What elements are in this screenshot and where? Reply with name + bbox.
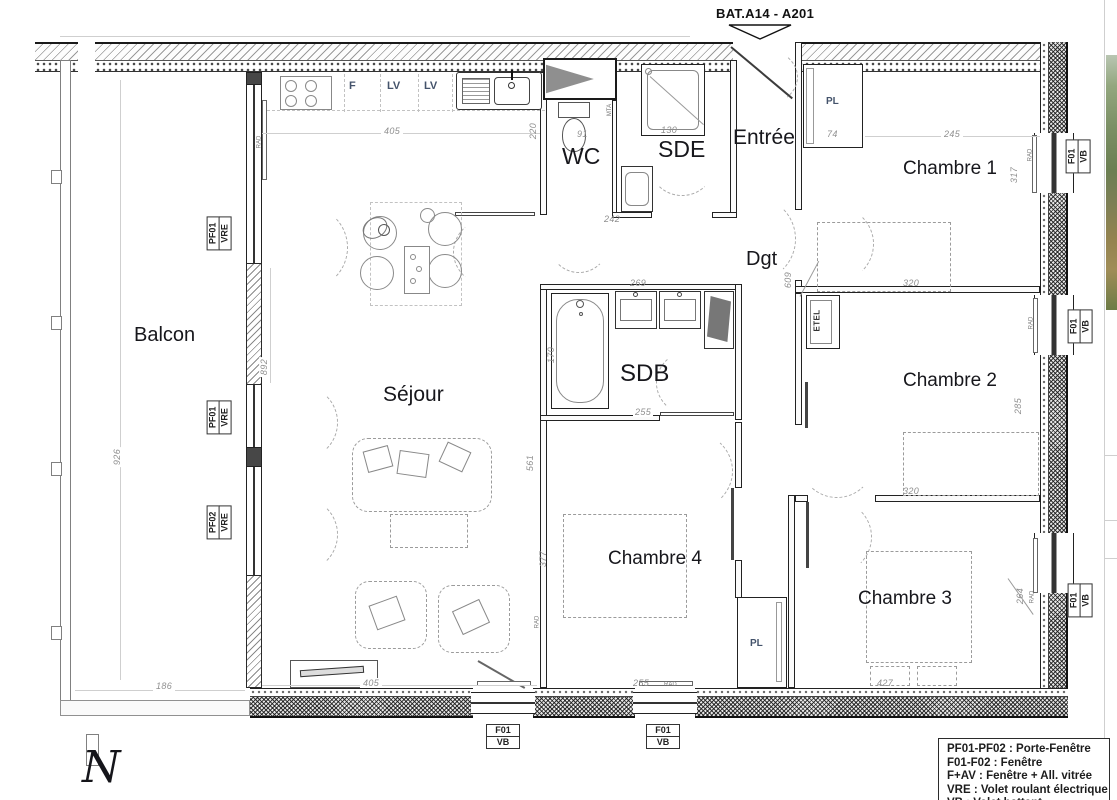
- exterior-wall-right: [1040, 593, 1068, 700]
- window-tag-pf01: PF01VRE: [207, 216, 232, 250]
- sdb-sink-inner: [664, 299, 696, 321]
- interior-wall: [875, 495, 1040, 502]
- dimension: 220: [528, 123, 538, 139]
- table-decor: [416, 266, 422, 272]
- table-line: [1104, 520, 1117, 521]
- radiator: [1032, 135, 1037, 193]
- plant-icon: [420, 208, 435, 223]
- door-arc: [800, 426, 874, 498]
- window-tag-f01: F01VB: [1068, 583, 1093, 617]
- dimension: 264: [1015, 588, 1025, 604]
- dimension: 130: [661, 125, 677, 135]
- closet-label: PL: [826, 96, 839, 107]
- door-arc: [798, 500, 872, 574]
- dimension: 320: [903, 486, 919, 496]
- entrance-arrow-icon: [728, 24, 792, 41]
- interior-wall: [735, 284, 742, 420]
- window-sejour-south: [471, 692, 535, 714]
- burner-icon: [285, 95, 297, 107]
- bath-drain-icon: [579, 312, 583, 316]
- tag-shutter: VB: [1079, 309, 1092, 343]
- porte-fenetre-pf01-mid: [246, 385, 262, 447]
- balcony-tab: [51, 626, 62, 640]
- sde-washbasin-inner: [625, 172, 649, 206]
- door-arc: [549, 213, 609, 273]
- faucet-stem: [511, 70, 513, 80]
- counter-edge: [262, 110, 545, 111]
- radiator: [1033, 538, 1038, 593]
- counter-divider: [418, 74, 419, 112]
- dimension-line: [120, 80, 121, 680]
- porte-fenetre-pf02: [246, 467, 262, 575]
- dimension: 892: [259, 357, 269, 377]
- dimension: 561: [525, 455, 535, 471]
- legend-line: VRE : Volet roulant électrique: [947, 784, 1101, 798]
- room-label-chambre2: Chambre 2: [903, 370, 997, 392]
- plan-reference: BAT.A14 - A201: [716, 6, 814, 21]
- tag-shutter: VB: [646, 736, 680, 749]
- door-arc: [453, 215, 541, 289]
- table-decor: [410, 278, 416, 284]
- tag-shutter: VB: [486, 736, 520, 749]
- balcony-rail: [60, 60, 71, 716]
- table-decor: [410, 254, 416, 260]
- room-label-entree: Entrée: [733, 126, 795, 150]
- wall-pier: [246, 575, 262, 688]
- table-line: [1104, 558, 1117, 559]
- room-label-chambre4: Chambre 4: [608, 548, 702, 570]
- balcony-tab: [51, 170, 62, 184]
- interior-wall: [735, 422, 742, 488]
- sdb-cabinet-door: [707, 296, 731, 342]
- window-tag-f01: F01VB: [646, 724, 680, 749]
- dimension: 255: [633, 678, 649, 688]
- window-tag-pf02: PF02VRE: [207, 505, 232, 539]
- dimension: 377: [538, 551, 548, 567]
- balcony-tab: [51, 316, 62, 330]
- shower-inner: [647, 70, 699, 130]
- page-divider-line: [1104, 0, 1105, 800]
- dimension: 320: [903, 278, 919, 288]
- tag-shutter: VB: [1077, 139, 1090, 173]
- washer-label: LV: [424, 80, 437, 92]
- burner-icon: [305, 80, 317, 92]
- dimension-line: [262, 685, 537, 686]
- tag-shutter: VRE: [218, 505, 231, 539]
- door-leaf: [805, 382, 808, 428]
- north-arrow-label: N: [82, 742, 121, 793]
- room-label-sejour: Séjour: [383, 383, 444, 407]
- sink-tap-icon: [677, 292, 682, 297]
- tag-shutter: VRE: [218, 400, 231, 434]
- exterior-wall-right: [1040, 42, 1068, 133]
- door-arc: [263, 385, 338, 460]
- rad-label: RAD: [534, 616, 540, 629]
- wall-pier: [246, 72, 262, 85]
- interior-wall: [788, 495, 795, 688]
- exterior-wall-right: [1040, 355, 1068, 533]
- bed-outline-chambre2: [903, 432, 1039, 496]
- bath-faucet-icon: [576, 300, 584, 308]
- shower-head-icon: [645, 68, 652, 75]
- photo-thumbnail: [1106, 55, 1117, 310]
- room-label-chambre3: Chambre 3: [858, 588, 952, 610]
- legend-line: PF01-PF02 : Porte-Fenêtre: [947, 743, 1101, 757]
- legend-box: PF01-PF02 : Porte-Fenêtre F01-F02 : Fenê…: [938, 738, 1110, 800]
- exterior-wall-right: [1040, 193, 1068, 295]
- tag-shutter: VB: [1079, 583, 1092, 617]
- coffee-table-outline: [390, 514, 468, 548]
- window-tag-pf01: PF01VRE: [207, 400, 232, 434]
- balcony-slab-edge: [60, 700, 250, 716]
- dimension: 170: [546, 347, 556, 363]
- dimension: 74: [827, 129, 838, 139]
- closet-door: [776, 602, 782, 682]
- dimension: 405: [360, 678, 382, 688]
- legend-line: F01-F02 : Fenêtre: [947, 757, 1101, 771]
- rad-label: RAD: [256, 136, 262, 149]
- interior-wall: [795, 293, 802, 425]
- sink-drainer: [462, 78, 490, 104]
- balcony-tab: [51, 462, 62, 476]
- bed-outline-chambre1: [817, 222, 951, 292]
- rad-label: RAD: [1028, 317, 1034, 330]
- dimension: 285: [1013, 398, 1023, 414]
- burner-icon: [305, 95, 317, 107]
- rad-label: RAD: [664, 682, 677, 688]
- floor-plan-page: { "annotations": { "bat_ref": "BAT.A14 -…: [0, 0, 1117, 800]
- interior-wall: [795, 495, 808, 502]
- door-arc: [263, 205, 348, 290]
- exterior-wall-bottom: [533, 688, 635, 718]
- door-arc: [263, 497, 338, 572]
- room-label-sde: SDE: [658, 136, 705, 163]
- interior-wall: [540, 285, 547, 688]
- interior-wall: [735, 560, 742, 598]
- dishwasher-label: LV: [387, 80, 400, 92]
- dimension: 186: [153, 681, 175, 691]
- interior-wall: [612, 100, 617, 215]
- window-tag-f01: F01VB: [1066, 139, 1091, 173]
- closet-label: PL: [750, 638, 763, 649]
- dimension-line: [270, 268, 271, 383]
- tag-shutter: VRE: [218, 216, 231, 250]
- rad-label: RAD: [1029, 591, 1035, 604]
- dimension: 609: [783, 272, 793, 288]
- toilet-tank: [558, 102, 590, 118]
- dimension: 427: [877, 678, 893, 688]
- room-label-wc: WC: [562, 143, 600, 170]
- legend-line: F+AV : Fenêtre + All. vitrée: [947, 770, 1101, 784]
- room-label-dgt: Dgt: [746, 248, 777, 271]
- window-chambre4-south: [633, 692, 697, 714]
- bed-stool-outline: [917, 666, 957, 686]
- dimension: 242: [604, 214, 620, 224]
- room-label-sdb: SDB: [620, 360, 669, 388]
- room-label-balcon: Balcon: [134, 324, 195, 347]
- dimension: 405: [381, 126, 403, 136]
- counter-divider: [452, 74, 453, 112]
- porte-fenetre-pf01-north: [246, 85, 262, 263]
- counter-divider: [380, 74, 381, 112]
- rad-label: RAD: [1027, 149, 1033, 162]
- dimension: 255: [633, 407, 653, 417]
- burner-icon: [285, 80, 297, 92]
- door-arc: [643, 430, 733, 512]
- dimension: 317: [1009, 167, 1019, 183]
- room-label-chambre1: Chambre 1: [903, 158, 997, 180]
- exterior-wall-bottom: [250, 688, 473, 718]
- dimension: 91: [577, 129, 588, 139]
- cushion: [396, 450, 429, 478]
- dimension: 269: [630, 278, 646, 288]
- exterior-wall-top: [95, 42, 733, 72]
- window-tag-f01: F01VB: [486, 724, 520, 749]
- etel-label: ETEL: [813, 309, 822, 331]
- exterior-wall-bottom: [695, 688, 1068, 718]
- faucet-icon: [508, 82, 515, 89]
- person-head: [378, 224, 390, 236]
- mta-label: MTA: [607, 104, 613, 116]
- sink-tap-icon: [633, 292, 638, 297]
- dimension: 926: [112, 447, 122, 467]
- window-tag-f01: F01VB: [1068, 309, 1093, 343]
- chair: [360, 256, 394, 290]
- counter-divider: [344, 74, 345, 112]
- door-arc: [714, 46, 798, 108]
- dimension: 245: [941, 129, 963, 139]
- fridge-label: F: [349, 80, 356, 92]
- exterior-wall-top: [35, 42, 78, 72]
- closet-door: [806, 68, 814, 144]
- wall-pier: [246, 447, 262, 467]
- radiator: [262, 100, 267, 180]
- door-leaf: [731, 488, 734, 560]
- chair: [428, 254, 462, 288]
- roof-line: [60, 36, 690, 37]
- table-line: [1104, 455, 1117, 456]
- sdb-sink-inner: [620, 299, 652, 321]
